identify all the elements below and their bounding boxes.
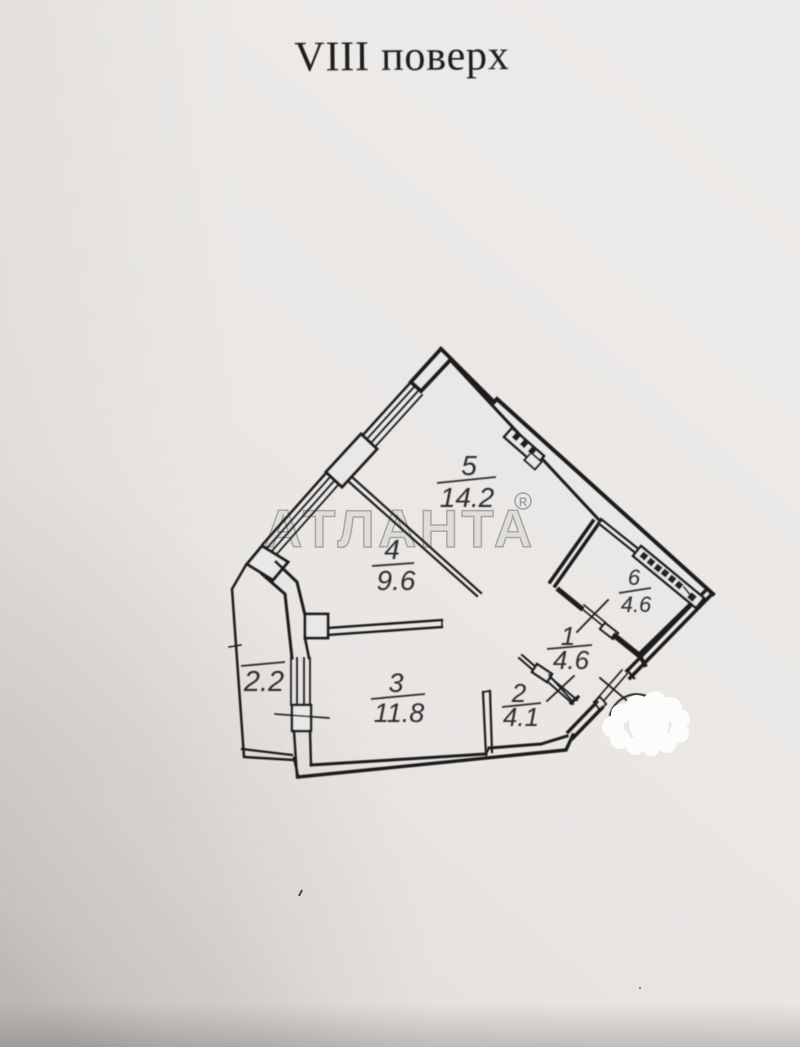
svg-text:6: 6 bbox=[628, 565, 641, 590]
svg-text:11.8: 11.8 bbox=[374, 698, 425, 728]
svg-text:14.2: 14.2 bbox=[440, 482, 495, 513]
svg-text:2.2: 2.2 bbox=[243, 666, 284, 698]
svg-text:4.1: 4.1 bbox=[503, 702, 539, 732]
svg-text:4.6: 4.6 bbox=[553, 645, 590, 675]
svg-text:VIII поверх: VIII поверх bbox=[294, 33, 510, 81]
svg-text:4.6: 4.6 bbox=[621, 592, 652, 617]
svg-text:4: 4 bbox=[384, 534, 400, 565]
svg-text:9.6: 9.6 bbox=[377, 565, 416, 596]
svg-text:5: 5 bbox=[461, 450, 477, 481]
svg-text:3: 3 bbox=[388, 668, 403, 698]
svg-text:R: R bbox=[519, 497, 528, 509]
